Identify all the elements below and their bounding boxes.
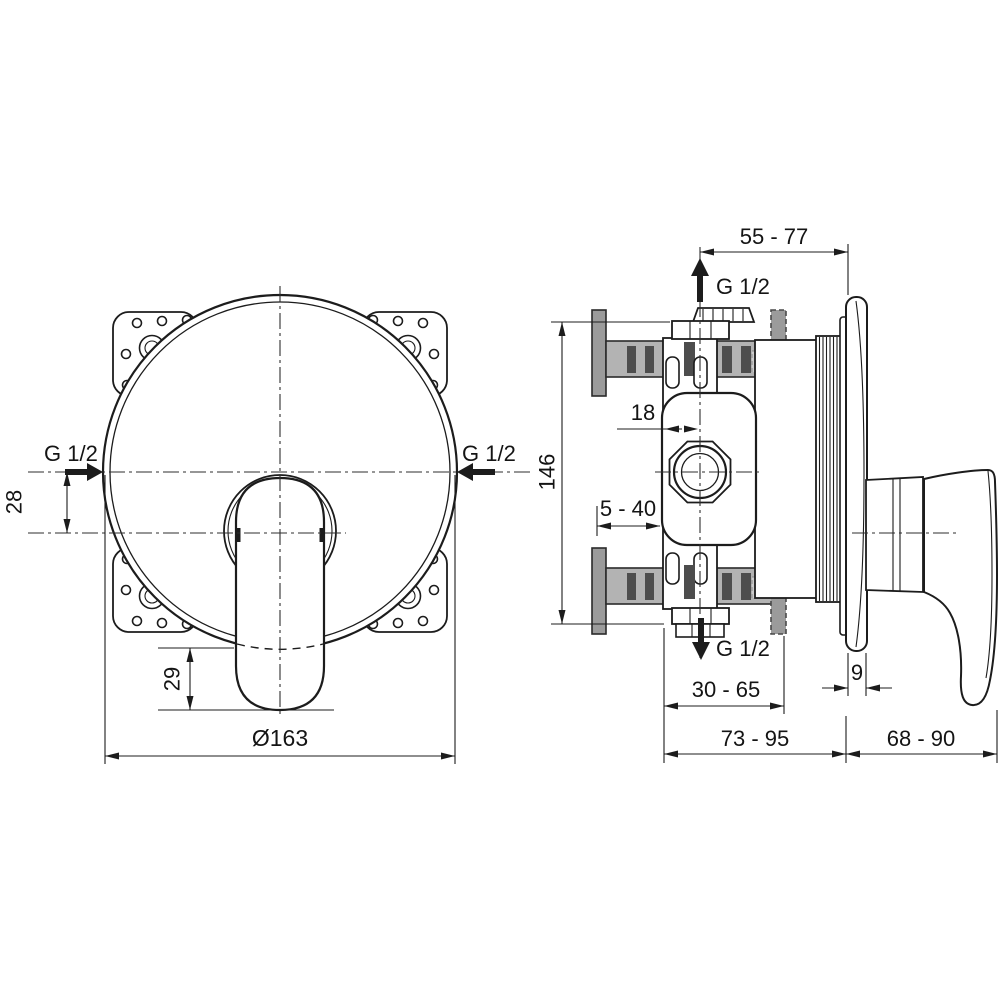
clip-slot-top-left <box>666 357 679 388</box>
dim-label-9: 9 <box>851 660 863 685</box>
dim-label-146: 146 <box>535 454 560 491</box>
lever-handle-side <box>924 470 997 705</box>
dimension-9: 9 <box>822 653 892 696</box>
column-window-bottom <box>684 565 695 599</box>
mixer-valve-dimension-drawing: G 1/2 G 1/2 28 29 Ø163 <box>0 0 1000 1000</box>
dim-label-5-40: 5 - 40 <box>600 496 656 521</box>
dim-label-29: 29 <box>160 667 185 691</box>
valve-cartridge-housing <box>755 340 817 598</box>
inlet-label-right: G 1/2 <box>462 441 516 466</box>
dim-label-55-77: 55 - 77 <box>740 224 809 249</box>
dimension-73-95: 73 - 95 <box>664 716 846 763</box>
dim-label-diameter: Ø163 <box>252 725 308 751</box>
dimension-5-40: 5 - 40 <box>597 496 660 536</box>
dimension-68-90: 68 - 90 <box>846 710 997 763</box>
outlet-label-top: G 1/2 <box>716 274 770 299</box>
wall-flange-bottom-left <box>592 548 606 634</box>
technical-drawing-page: G 1/2 G 1/2 28 29 Ø163 <box>0 0 1000 1000</box>
wall-flange-top-left <box>592 310 606 396</box>
front-view: G 1/2 G 1/2 28 29 Ø163 <box>2 286 534 764</box>
handle-hub-side <box>866 477 923 592</box>
threaded-collar <box>816 336 842 602</box>
clip-slot-bottom-left <box>666 553 679 584</box>
dim-label-28: 28 <box>2 490 27 514</box>
inlet-label-left: G 1/2 <box>44 441 98 466</box>
dim-label-73-95: 73 - 95 <box>721 726 790 751</box>
side-view: G 1/2 G 1/2 55 - 77 146 18 <box>535 224 998 763</box>
dimension-28: 28 <box>2 472 71 533</box>
dim-label-18: 18 <box>631 400 655 425</box>
outlet-arrow-up <box>691 258 709 302</box>
dim-label-30-65: 30 - 65 <box>692 677 761 702</box>
dim-label-68-90: 68 - 90 <box>887 726 956 751</box>
lever-notch-left <box>237 528 241 542</box>
lever-notch-right <box>320 528 324 542</box>
outlet-label-bottom: G 1/2 <box>716 636 770 661</box>
